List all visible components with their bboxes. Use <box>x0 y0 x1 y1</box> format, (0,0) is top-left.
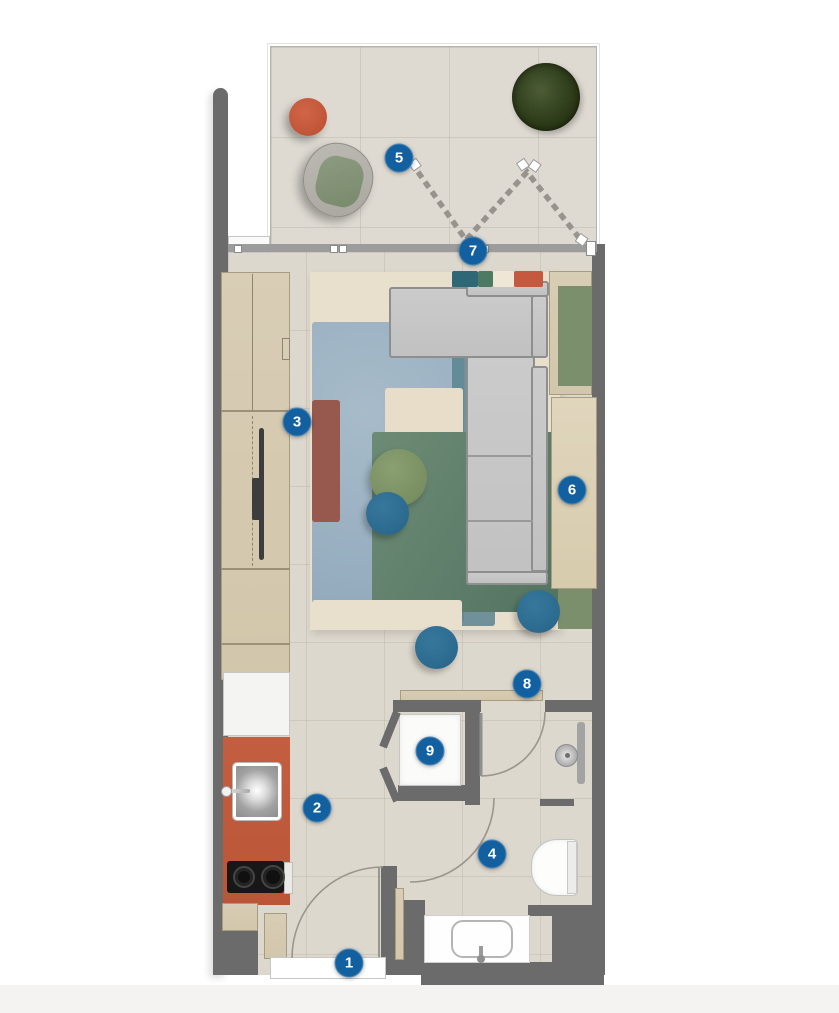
pillow-teal <box>452 271 478 287</box>
marker-4-number: 4 <box>488 846 496 863</box>
stove-burner <box>261 865 285 889</box>
marker-1-number: 1 <box>345 955 353 972</box>
pillow-red <box>514 271 543 287</box>
marker-8[interactable]: 8 <box>513 670 542 699</box>
unit-divider <box>221 410 290 412</box>
entry-door-jamb-left <box>264 913 287 959</box>
stove-switch-panel <box>284 862 293 894</box>
bottom-right-wall-block <box>552 905 604 985</box>
marker-6-number: 6 <box>568 482 576 499</box>
wardrobe-door-split <box>252 274 253 410</box>
bathroom-wall-right-segment <box>545 700 592 712</box>
unit-divider <box>221 568 290 570</box>
background-band <box>0 985 839 1013</box>
pillow-green <box>478 271 493 287</box>
marker-3[interactable]: 3 <box>283 408 312 437</box>
sofa-cushion-seam <box>468 455 533 457</box>
bottom-left-wall-block <box>213 930 258 975</box>
sofa-chaise <box>466 356 535 585</box>
balcony-side-table <box>289 98 327 136</box>
closet-bottom-wall <box>398 785 465 801</box>
marker-5-number: 5 <box>395 150 403 167</box>
green-panel-upper <box>558 286 592 386</box>
marker-1[interactable]: 1 <box>335 949 364 978</box>
entry-threshold <box>270 957 386 979</box>
green-panel-lower <box>558 589 592 629</box>
bathroom-bottom-stub <box>528 905 556 916</box>
rug-cream-bottom-strip <box>312 600 462 628</box>
pillow-cream <box>493 271 514 287</box>
entry-door-jamb-right <box>395 888 404 960</box>
toilet-partition-stub <box>540 799 574 806</box>
bathroom-wall-left-segment <box>393 700 481 712</box>
marker-8-number: 8 <box>523 676 531 693</box>
faucet-knob <box>221 786 232 797</box>
marker-9-number: 9 <box>426 743 434 760</box>
sofa-bed <box>389 287 535 358</box>
track-roller <box>234 245 242 253</box>
track-roller <box>330 245 338 253</box>
sliding-door-track <box>228 244 597 252</box>
stool-blue-1 <box>366 492 409 535</box>
tall-unit-handle-grip <box>252 478 262 520</box>
track-roller <box>339 245 347 253</box>
unit-divider <box>221 643 290 645</box>
stool-blue-3 <box>415 626 458 669</box>
rug-mauve-patch <box>312 400 340 522</box>
marker-6[interactable]: 6 <box>558 476 587 505</box>
marker-4[interactable]: 4 <box>478 840 507 869</box>
marker-2[interactable]: 2 <box>303 794 332 823</box>
marker-2-number: 2 <box>313 800 321 817</box>
fridge <box>223 672 290 736</box>
right-exterior-wall <box>592 244 605 975</box>
closet-right-wall <box>465 712 480 805</box>
kitchen-base-cabinet <box>222 903 258 931</box>
sofa-armrest <box>531 366 548 572</box>
sofa-bottom-rail <box>466 571 548 585</box>
shower-rail <box>577 722 585 784</box>
stool-blue-2 <box>517 590 560 633</box>
wardrobe-unit <box>221 272 290 680</box>
sofa-cushion-seam <box>468 520 533 522</box>
floor-plan-canvas: 1 2 3 4 5 6 7 8 9 <box>0 0 839 1013</box>
wardrobe-handle-notch <box>282 338 290 360</box>
shower-head-center <box>565 753 570 758</box>
sofa-bed-side-rail <box>531 295 548 358</box>
marker-3-number: 3 <box>293 414 301 431</box>
marker-9[interactable]: 9 <box>416 737 445 766</box>
marker-5[interactable]: 5 <box>385 144 414 173</box>
basin-faucet <box>477 955 485 963</box>
stove-burner <box>233 866 255 888</box>
marker-7[interactable]: 7 <box>459 237 488 266</box>
track-end-post <box>586 241 596 256</box>
toilet-tank <box>567 841 577 894</box>
potted-tree <box>512 63 580 131</box>
marker-7-number: 7 <box>469 243 477 260</box>
